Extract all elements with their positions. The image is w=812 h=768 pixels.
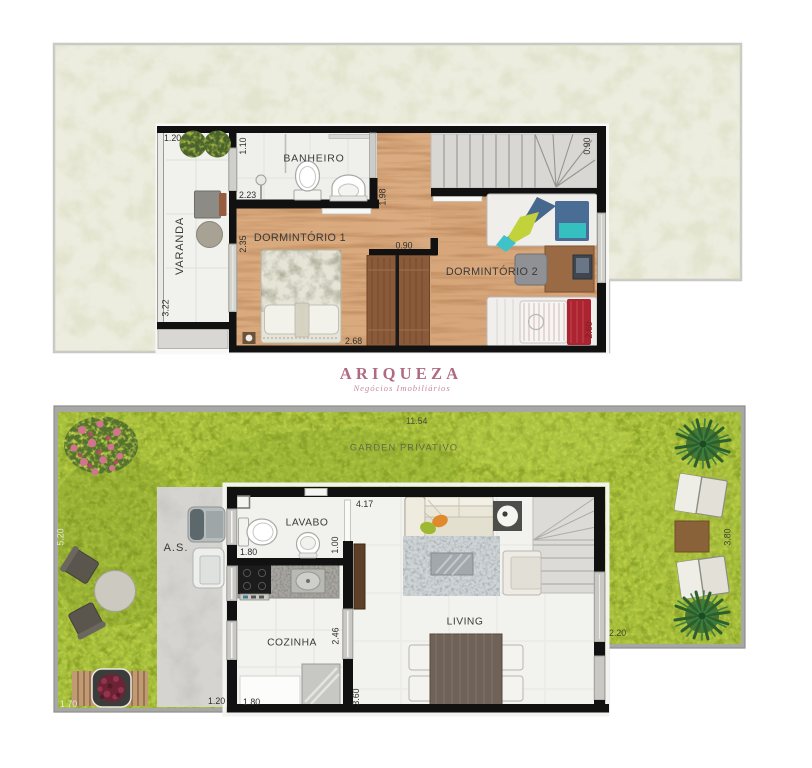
svg-text:1.70: 1.70 (60, 699, 77, 709)
svg-text:3.80: 3.80 (723, 528, 733, 545)
svg-text:COZINHA: COZINHA (267, 638, 317, 649)
svg-text:ARIQUEZA: ARIQUEZA (340, 364, 463, 383)
svg-text:1.00: 1.00 (330, 536, 340, 553)
svg-text:2.68: 2.68 (345, 336, 362, 346)
svg-text:1.80: 1.80 (240, 547, 257, 557)
svg-text:VARANDA: VARANDA (174, 217, 186, 275)
svg-text:3.60: 3.60 (351, 688, 361, 705)
svg-text:2.46: 2.46 (331, 627, 341, 644)
svg-text:1.80: 1.80 (243, 697, 260, 707)
svg-text:4.17: 4.17 (356, 499, 373, 509)
svg-text:1.20: 1.20 (164, 133, 181, 143)
svg-text:DORMINTÓRIO 2: DORMINTÓRIO 2 (446, 265, 538, 278)
svg-text:11.54: 11.54 (406, 416, 427, 426)
svg-text:Negócios Imobiliários: Negócios Imobiliários (352, 383, 450, 393)
svg-text:LIVING: LIVING (447, 617, 484, 628)
svg-text:A.S.: A.S. (164, 542, 189, 554)
svg-text:0.90: 0.90 (395, 241, 412, 251)
svg-text:5.20: 5.20 (56, 528, 66, 545)
svg-text:BANHEIRO: BANHEIRO (283, 153, 344, 165)
svg-text:1.10: 1.10 (238, 137, 248, 154)
svg-text:DORMINTÓRIO 1: DORMINTÓRIO 1 (254, 231, 346, 244)
svg-text:0.90: 0.90 (582, 137, 592, 154)
svg-text:1.98: 1.98 (378, 188, 388, 205)
svg-text:2.60: 2.60 (584, 321, 594, 338)
svg-text:3.22: 3.22 (161, 299, 171, 316)
svg-text:2.35: 2.35 (238, 235, 248, 252)
svg-text:LAVABO: LAVABO (286, 518, 329, 529)
svg-text:2.20: 2.20 (609, 628, 626, 638)
svg-text:1.20: 1.20 (208, 696, 225, 706)
svg-text:GARDEN PRIVATIVO: GARDEN PRIVATIVO (350, 443, 458, 453)
svg-text:2.23: 2.23 (239, 190, 256, 200)
